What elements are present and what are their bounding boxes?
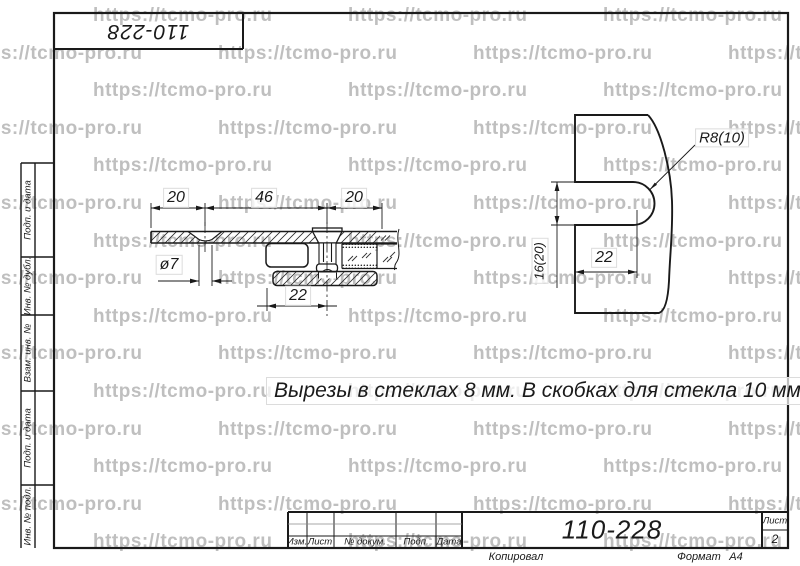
title-block-sheet-label: Лист (763, 516, 787, 527)
side-strip-label-podp-i-data-2: Подп. и дата (23, 408, 34, 467)
dim-label-notch-depth: 22 (591, 248, 617, 268)
footer-format-value: А4 (729, 551, 742, 563)
title-block-doc-number: 110-228 (562, 515, 663, 546)
side-strip-label-inv-podl: Инв. № подл. (23, 487, 34, 546)
section-view (151, 228, 399, 286)
drawing-sheet: https://tcmo-pro.ruhttps://tcmo-pro.ruht… (0, 0, 800, 566)
side-strip-label-inv-dubl: Инв. № дубл. (23, 257, 34, 315)
title-block-col-list: Лист (308, 537, 332, 548)
title-block-sheet-number: 2 (772, 532, 779, 546)
footer-format-label: Формат (677, 551, 721, 563)
dim-label-20-right: 20 (341, 188, 367, 208)
dim-label-radius: R8(10) (695, 128, 749, 147)
dim-label-46: 46 (251, 188, 277, 208)
dim-label-offset-22: 22 (285, 286, 311, 306)
dim-label-hole-diameter: ø7 (156, 255, 183, 275)
side-strip-label-vzam-inv: Взам. инв. № (23, 324, 34, 383)
corner-stamp-number: 110-228 (107, 19, 190, 43)
dim-label-notch-height: 16(20) (532, 238, 549, 284)
drawing-note: Вырезы в стеклах 8 мм. В скобках для сте… (266, 377, 800, 405)
glass-view-dimensions (551, 145, 695, 288)
dim-label-20-left: 20 (163, 188, 189, 208)
title-block-col-docnum: № докум. (344, 537, 386, 548)
title-block-col-data: Дата (436, 537, 461, 548)
drawing-linework (0, 0, 800, 566)
glass-edge-view (575, 115, 672, 313)
footer-copied-label: Копировал (489, 551, 544, 563)
sheet-frame (54, 13, 788, 548)
title-block-col-izm: Изм. (287, 537, 307, 548)
title-block-col-podp: Подп. (403, 537, 428, 548)
side-strip-label-podp-i-data-1: Подп. и дата (23, 180, 34, 239)
